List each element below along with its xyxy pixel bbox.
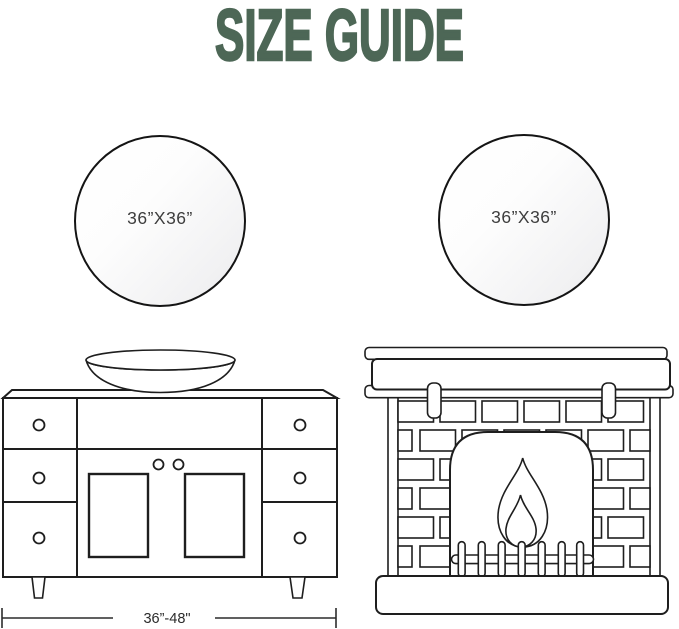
mantel-corbel-left	[428, 383, 442, 418]
hearth-base	[376, 576, 668, 614]
fireplace-drawing	[355, 340, 679, 620]
vessel-sink-icon	[86, 350, 235, 393]
mantel	[365, 348, 673, 398]
size-guide-infographic: SIZE GUIDE 36”X36” 36”X36”	[0, 0, 679, 629]
mirror-size-label-left: 36”X36”	[127, 208, 193, 229]
fireplace-pilaster-left	[388, 397, 398, 577]
vanity-leg-right	[290, 577, 305, 598]
page-title: SIZE GUIDE	[132, 0, 546, 72]
dimension-label: 36”-48"	[143, 611, 190, 627]
round-mirror-right: 36”X36”	[438, 134, 610, 306]
mantel-corbel-right	[602, 383, 616, 418]
cabinet-body	[3, 398, 337, 577]
fireplace-pilaster-right	[650, 397, 660, 577]
vanity-leg-left	[32, 577, 45, 598]
round-mirror-left: 36”X36”	[74, 135, 246, 307]
vanity-drawing: 36”-48"	[0, 340, 345, 629]
mirror-size-label-right: 36”X36”	[491, 207, 557, 228]
